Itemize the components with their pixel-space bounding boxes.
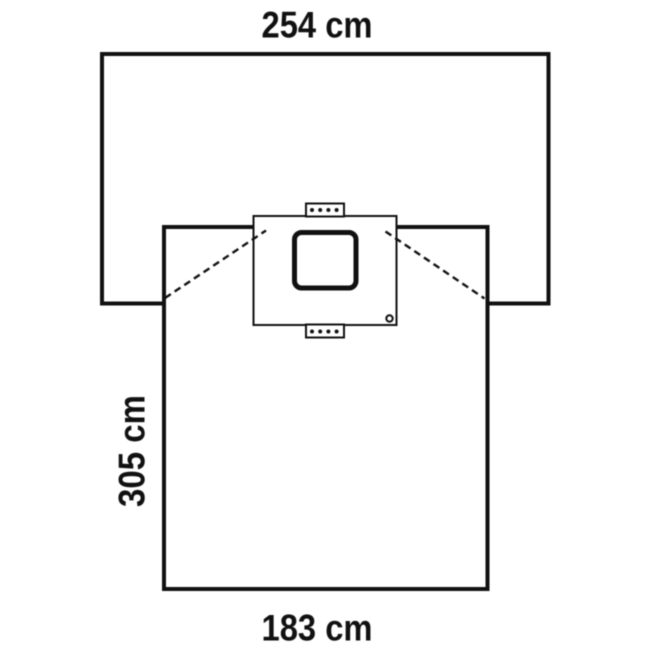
svg-text:254 cm: 254 cm <box>262 4 373 46</box>
svg-text:183 cm: 183 cm <box>262 607 373 649</box>
svg-text:305 cm: 305 cm <box>111 395 153 507</box>
